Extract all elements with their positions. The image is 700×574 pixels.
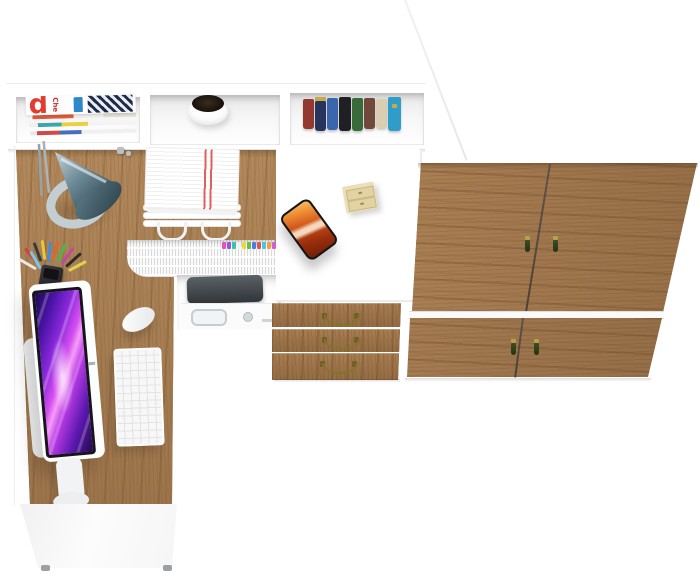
lamp-arm: [42, 141, 50, 193]
magazine-cover-title: Che: [51, 97, 59, 112]
book: [315, 97, 326, 131]
desk-organizer: [342, 181, 378, 213]
desk-foot: [163, 565, 172, 571]
drawer-unit-shadow: [274, 379, 400, 383]
printer-shelf: [177, 275, 287, 330]
index-tab: [222, 242, 226, 249]
drawer-handle: [322, 337, 359, 348]
desk-room-scene: d Che: [0, 0, 700, 574]
index-tabs: [222, 242, 276, 249]
paper-tray: [139, 146, 245, 244]
lamp-arm: [38, 144, 43, 196]
wardrobe-lower-doors: [400, 318, 700, 378]
desk-front-panel: [14, 498, 186, 572]
pencil-cup-opening: [43, 268, 60, 280]
book: [327, 98, 338, 130]
wardrobe-handle: [552, 236, 558, 252]
monitor-logo-dash: [88, 362, 95, 366]
magazine-stack: d Che: [25, 94, 138, 139]
organizer-knob: [360, 202, 364, 205]
index-tab: [257, 242, 261, 249]
book: [376, 99, 387, 128]
organizer-knob: [358, 192, 362, 195]
wardrobe-top-shadow: [418, 163, 698, 169]
index-tab: [242, 242, 246, 249]
pencil: [41, 240, 47, 260]
wardrobe-handle: [510, 339, 516, 355]
document-sheet: [144, 147, 240, 211]
printer-handle: [191, 309, 227, 326]
keyboard: [113, 347, 164, 447]
plant-pot-soil: [192, 95, 224, 112]
shelf-cubby-right: [290, 93, 424, 145]
wardrobe-handle: [533, 339, 539, 355]
drawer-handle: [322, 313, 359, 324]
index-tab: [267, 242, 271, 249]
shelf-cubby-center: [150, 95, 280, 145]
book: [352, 98, 363, 131]
wardrobe-bottom-shadow: [405, 378, 651, 382]
magazine-cover-letter: d: [28, 94, 48, 116]
shelf-cubby-left: d Che: [16, 97, 140, 143]
printer: [187, 275, 264, 305]
wardrobe-upper-doors: [400, 160, 700, 315]
tray-leg: [157, 222, 187, 241]
drawer-unit: [272, 303, 402, 380]
book: [364, 98, 375, 129]
book: [339, 97, 351, 131]
wardrobe-handle: [524, 236, 530, 252]
index-tab: [237, 242, 241, 249]
drawer-handle: [320, 361, 357, 372]
desk-foot: [41, 565, 50, 571]
desk-lamp: [8, 138, 130, 242]
printer-knob: [243, 312, 253, 322]
book-gold-emblem: [392, 104, 397, 108]
index-tab: [247, 242, 251, 249]
tray-leg: [201, 222, 231, 241]
index-tab: [252, 242, 256, 249]
magazine-cover-blue-block: [74, 97, 83, 112]
wardrobe-divider-strip: [409, 311, 664, 319]
magazine-cover-checker-pattern: [87, 95, 132, 113]
magazine-cover: d Che: [25, 94, 135, 116]
book: [388, 97, 401, 131]
index-tab: [227, 242, 231, 249]
index-tab: [232, 242, 236, 249]
index-tab: [262, 242, 266, 249]
book: [303, 99, 314, 129]
